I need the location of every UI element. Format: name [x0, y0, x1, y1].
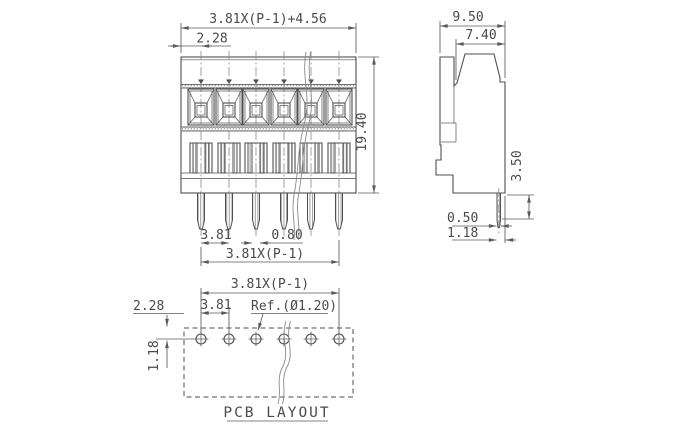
dim-front-total-width: 3.81X(P-1)+4.56: [209, 12, 326, 27]
dim-side-pin-to-edge: 1.18: [447, 226, 478, 241]
front-lower-hatch-strip: [181, 127, 356, 131]
pin: [226, 193, 233, 229]
pin: [253, 193, 260, 229]
side-view: 9.50 7.40 3.50 0.50 1.18: [436, 10, 534, 243]
hole: [194, 332, 209, 347]
wire-entry-marks: [198, 80, 342, 85]
dim-front-pitch: 3.81: [200, 228, 231, 243]
side-body-outline: [436, 54, 505, 193]
dim-side-pin-thickness: 0.50: [447, 211, 478, 226]
pcb-outline: [184, 328, 353, 397]
dim-pcb-hole-span: 3.81X(P-1): [231, 277, 309, 292]
pcb-holes: [194, 332, 347, 347]
dim-front-pin-span: 3.81X(P-1): [226, 247, 304, 262]
pin: [198, 193, 205, 229]
contact-slots: [190, 143, 350, 173]
technical-drawing: 3.81X(P-1)+4.56 2.28 19.40 3.81 0.80 3.8…: [0, 0, 680, 440]
pin: [308, 193, 315, 229]
side-dimensions: 9.50 7.40 3.50 0.50 1.18: [440, 10, 534, 243]
front-dimensions: 3.81X(P-1)+4.56 2.28 19.40 3.81 0.80 3.8…: [168, 12, 379, 266]
dim-pcb-edge-offset: 2.28: [133, 299, 164, 314]
pcb-dimensions: 3.81X(P-1) 3.81 2.28 1.18 Ref.(Ø1.20): [133, 277, 339, 372]
hole: [249, 332, 264, 347]
dim-pcb-row-offset: 1.18: [147, 340, 162, 371]
front-pins: [198, 193, 343, 229]
hole: [332, 332, 347, 347]
front-upper-hatch-strip: [181, 85, 356, 89]
hole: [222, 332, 237, 347]
pcb-hole-diameter-ref: Ref.(Ø1.20): [251, 299, 337, 314]
pin: [281, 193, 288, 229]
dim-side-pin-length: 3.50: [510, 150, 525, 181]
drawing-page: 3.81X(P-1)+4.56 2.28 19.40 3.81 0.80 3.8…: [0, 0, 680, 440]
dim-front-edge-to-pin: 2.28: [196, 32, 227, 47]
hole: [304, 332, 319, 347]
pcb-layout-title: PCB LAYOUT: [223, 405, 330, 421]
pcb-layout-view: 3.81X(P-1) 3.81 2.28 1.18 Ref.(Ø1.20) PC…: [133, 277, 353, 421]
dim-front-pin-width: 0.80: [271, 228, 302, 243]
pcb-break-line: [278, 321, 291, 404]
dim-front-height: 19.40: [355, 112, 370, 151]
dim-side-depth: 9.50: [452, 10, 483, 25]
pin: [336, 193, 343, 229]
front-view: 3.81X(P-1)+4.56 2.28 19.40 3.81 0.80 3.8…: [168, 12, 379, 266]
dim-pcb-hole-pitch: 3.81: [200, 298, 231, 313]
screw-heads: [188, 89, 352, 125]
dim-side-top-depth: 7.40: [465, 28, 496, 43]
